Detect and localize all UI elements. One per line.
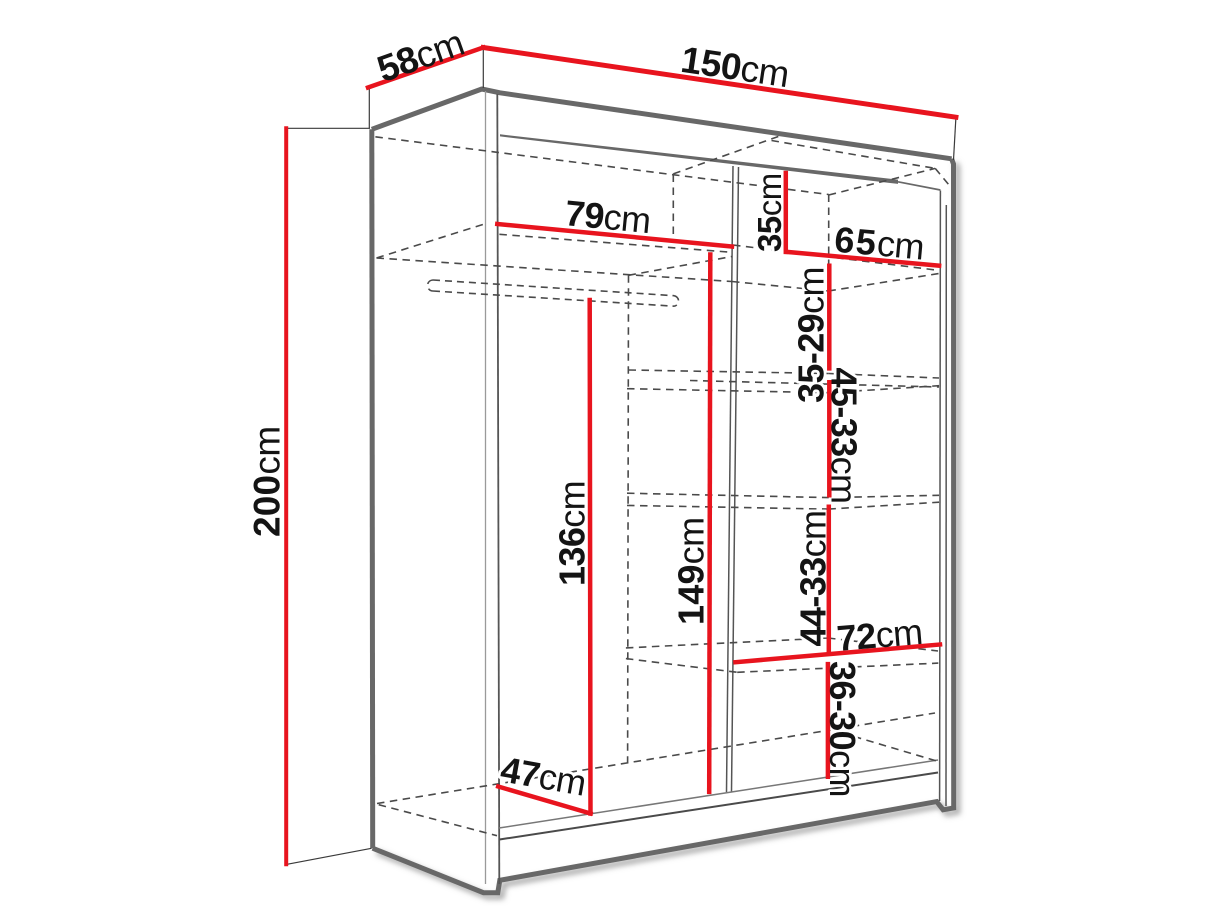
svg-text:200cm: 200cm [247,426,288,537]
svg-text:136cm: 136cm [552,481,593,586]
svg-text:79cm: 79cm [563,192,652,241]
svg-text:45-33cm: 45-33cm [824,368,865,504]
svg-text:65cm: 65cm [833,219,926,268]
svg-text:35cm: 35cm [751,173,788,252]
svg-text:36-30cm: 36-30cm [822,661,863,797]
svg-text:149cm: 149cm [671,518,712,625]
svg-text:44-33cm: 44-33cm [793,511,834,647]
svg-text:72cm: 72cm [835,611,924,659]
